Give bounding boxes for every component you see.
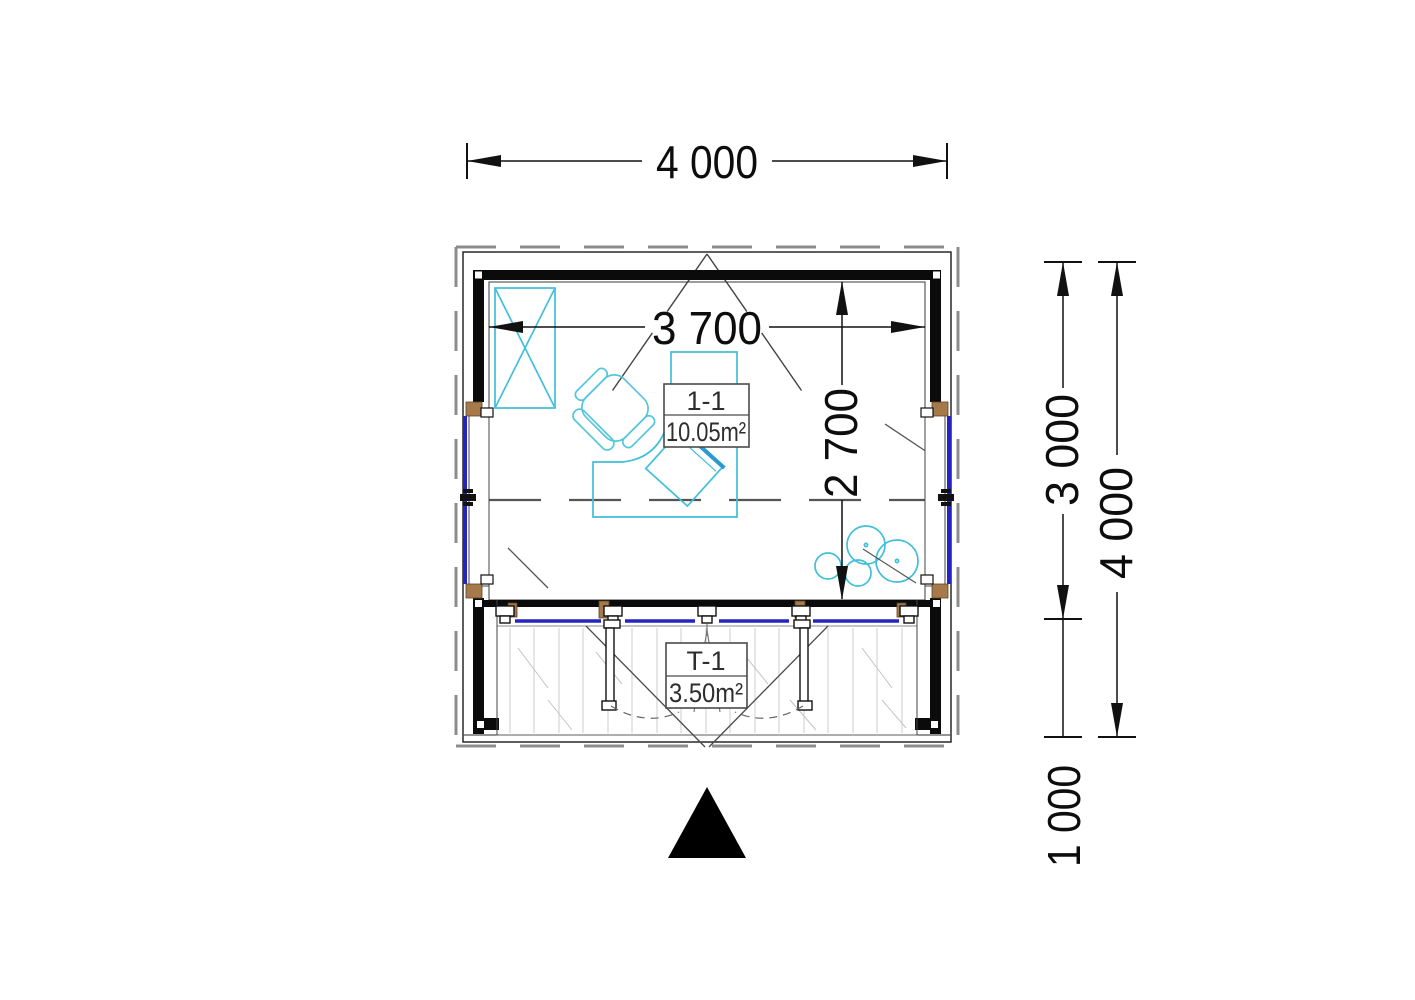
dim-total-depth: 4 000 — [1090, 262, 1142, 737]
dim-inner-width-label: 3 700 — [652, 302, 762, 354]
dim-arrow-up — [1057, 262, 1069, 296]
dim-top-width-label: 4 000 — [656, 136, 758, 188]
dim-arrow-up — [1111, 262, 1123, 296]
window-right-sill-top — [932, 402, 948, 416]
room-label-1-1: 1-1 10.05m² — [664, 384, 749, 447]
terrace-id: T-1 — [686, 646, 725, 676]
dim-arrow-right — [913, 155, 947, 167]
floor-plan-drawing: 4 000 3 700 2 700 3 000 1 000 — [0, 0, 1415, 1000]
window-left — [460, 402, 493, 598]
terrace-label-t-1: T-1 3.50m² — [666, 643, 747, 708]
window-left-sill-top — [466, 402, 482, 416]
dim-arrow-left — [467, 155, 501, 167]
dim-room-depth: 3 000 1 000 — [1036, 262, 1090, 867]
floor-plan-page: 4 000 3 700 2 700 3 000 1 000 — [0, 0, 1415, 1000]
room-area: 10.05m² — [666, 417, 746, 447]
dim-arrow-down — [1057, 585, 1069, 619]
window-right — [921, 402, 954, 598]
dim-terrace-depth-label: 1 000 — [1038, 765, 1090, 867]
room-id: 1-1 — [686, 386, 725, 416]
dim-inner-depth-label: 2 700 — [815, 388, 867, 498]
window-right-sill-bottom — [932, 584, 948, 598]
dim-top-width: 4 000 — [467, 136, 947, 188]
dim-arrow-down — [1111, 703, 1123, 737]
entrance-marker-icon — [668, 787, 746, 858]
dim-room-depth-label: 3 000 — [1036, 394, 1088, 506]
window-left-sill-bottom — [466, 584, 482, 598]
top-wall-band — [473, 270, 941, 280]
dim-total-depth-label: 4 000 — [1090, 467, 1142, 579]
terrace-area: 3.50m² — [669, 678, 743, 708]
